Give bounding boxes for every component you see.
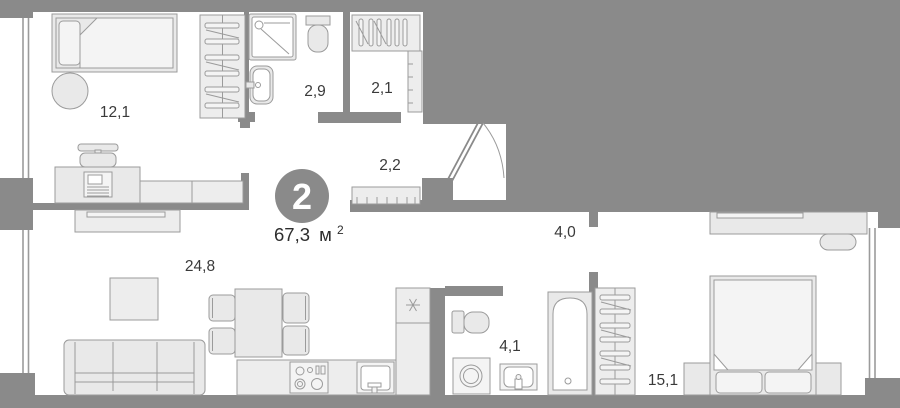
desk-symbol xyxy=(55,167,140,203)
window-left-lower xyxy=(23,230,29,373)
area-label-bedroom-2: 15,1 xyxy=(648,372,678,389)
window-right xyxy=(870,228,876,378)
desk-symbol-2 xyxy=(710,212,867,234)
stove-symbol xyxy=(290,362,328,393)
nightstand-right-symbol xyxy=(816,363,841,395)
room-hallway xyxy=(352,187,420,204)
wardrobe-symbol xyxy=(200,15,245,118)
washing-machine-symbol xyxy=(453,358,490,394)
sofa-symbol xyxy=(64,340,205,395)
wardrobe-symbol-2 xyxy=(595,288,635,395)
total-area-unit: м xyxy=(319,224,332,245)
bed-symbol xyxy=(52,14,177,72)
toilet-symbol-2 xyxy=(452,311,489,333)
floor-plan-canvas: 12,1 2,9 2,1 2,2 24,8 4,0 4,1 15,1 2 67,… xyxy=(0,0,900,408)
bathtub-symbol xyxy=(548,292,592,395)
fridge-symbol xyxy=(396,288,430,395)
area-label-corridor: 4,0 xyxy=(554,224,576,241)
nightstand-left-symbol xyxy=(684,363,710,395)
hanger-rod-symbol xyxy=(352,15,420,51)
area-label-shower-room: 2,9 xyxy=(304,83,326,100)
cabinet-symbol xyxy=(140,181,243,203)
total-area-value: 67,3 xyxy=(274,224,310,245)
tv-console-symbol xyxy=(75,210,180,232)
shelf-symbol xyxy=(408,51,422,112)
room-bathroom xyxy=(452,292,592,395)
entrance-door xyxy=(447,121,504,183)
total-area-label: 67,3 м 2 xyxy=(274,223,344,245)
area-label-living-kitchen: 24,8 xyxy=(185,258,215,275)
kitchen-sink-symbol xyxy=(357,362,394,393)
summary-badge: 2 67,3 м 2 xyxy=(274,169,344,245)
area-label-bedroom: 12,1 xyxy=(100,104,130,121)
window-left-upper xyxy=(23,18,29,178)
room-living-kitchen xyxy=(64,210,430,395)
chair-symbol xyxy=(78,144,118,167)
toilet-symbol xyxy=(306,16,330,52)
chair-symbol-2 xyxy=(820,234,856,250)
double-bed-symbol xyxy=(710,276,816,395)
floor-mat-symbol xyxy=(352,187,420,204)
coffee-table-symbol xyxy=(110,278,158,320)
room-count-value: 2 xyxy=(292,176,312,217)
room-bedroom-2 xyxy=(595,212,867,395)
area-label-bathroom: 4,1 xyxy=(499,338,521,355)
room-bedroom xyxy=(52,14,245,203)
rug-symbol xyxy=(52,73,88,109)
area-label-wardrobe: 2,1 xyxy=(371,80,393,97)
room-wardrobe xyxy=(352,15,422,112)
total-area-superscript: 2 xyxy=(337,223,344,237)
area-label-hallway: 2,2 xyxy=(379,157,401,174)
floor-plan: 12,1 2,9 2,1 2,2 24,8 4,0 4,1 15,1 2 67,… xyxy=(0,0,900,408)
dining-set-symbol xyxy=(209,289,309,357)
sink-symbol xyxy=(246,66,273,104)
shower-symbol xyxy=(249,14,296,60)
sink-symbol-2 xyxy=(500,364,537,390)
